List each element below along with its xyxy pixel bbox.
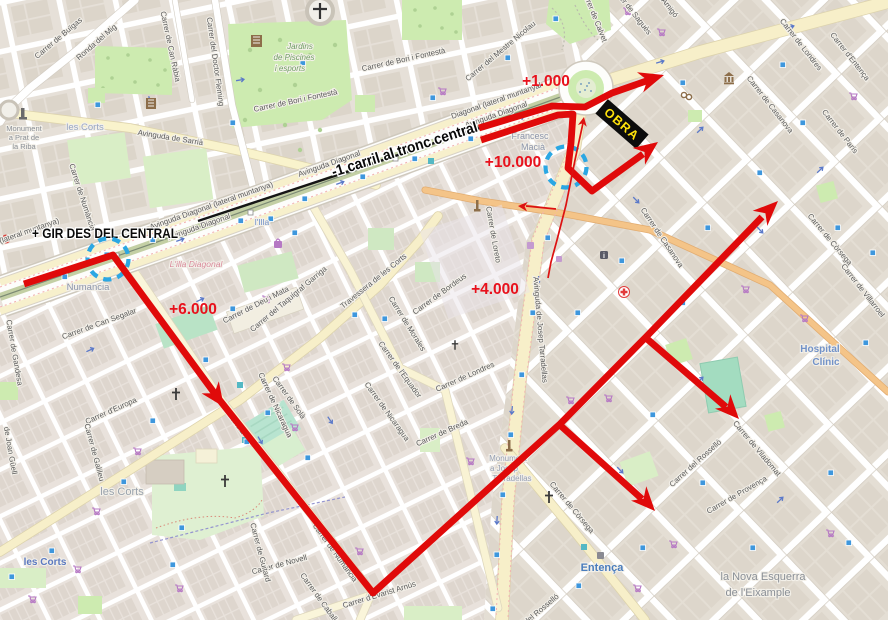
svg-text:la Nova Esquerra: la Nova Esquerra xyxy=(721,571,807,583)
svg-text:de l'Eixample: de l'Eixample xyxy=(725,587,790,599)
svg-text:Entença: Entença xyxy=(581,562,625,574)
svg-text:Francesc: Francesc xyxy=(511,131,549,141)
svg-text:i esports: i esports xyxy=(275,64,305,73)
svg-text:+10.000: +10.000 xyxy=(485,154,541,171)
svg-text:les Corts: les Corts xyxy=(66,122,104,133)
svg-text:l'Illa: l'Illa xyxy=(255,217,270,227)
svg-text:i: i xyxy=(603,253,605,260)
svg-text:Jardins: Jardins xyxy=(286,42,313,51)
svg-text:Clínic: Clínic xyxy=(812,357,840,368)
svg-text:+6.000: +6.000 xyxy=(169,301,217,318)
svg-text:+1.000: +1.000 xyxy=(522,73,570,90)
svg-text:de Piscines: de Piscines xyxy=(274,53,315,62)
svg-text:L'illa Diagonal: L'illa Diagonal xyxy=(170,259,224,269)
svg-text:Hospital: Hospital xyxy=(800,344,840,355)
svg-text:+4.000: +4.000 xyxy=(471,281,519,298)
svg-text:a Prat de: a Prat de xyxy=(9,133,39,142)
svg-text:Monument: Monument xyxy=(6,124,42,133)
svg-text:les Corts: les Corts xyxy=(24,557,67,568)
svg-text:Macià: Macià xyxy=(521,142,545,152)
svg-text:Numancia: Numancia xyxy=(67,282,110,293)
svg-text:la Riba: la Riba xyxy=(12,142,36,151)
svg-text:les Corts: les Corts xyxy=(100,486,144,498)
